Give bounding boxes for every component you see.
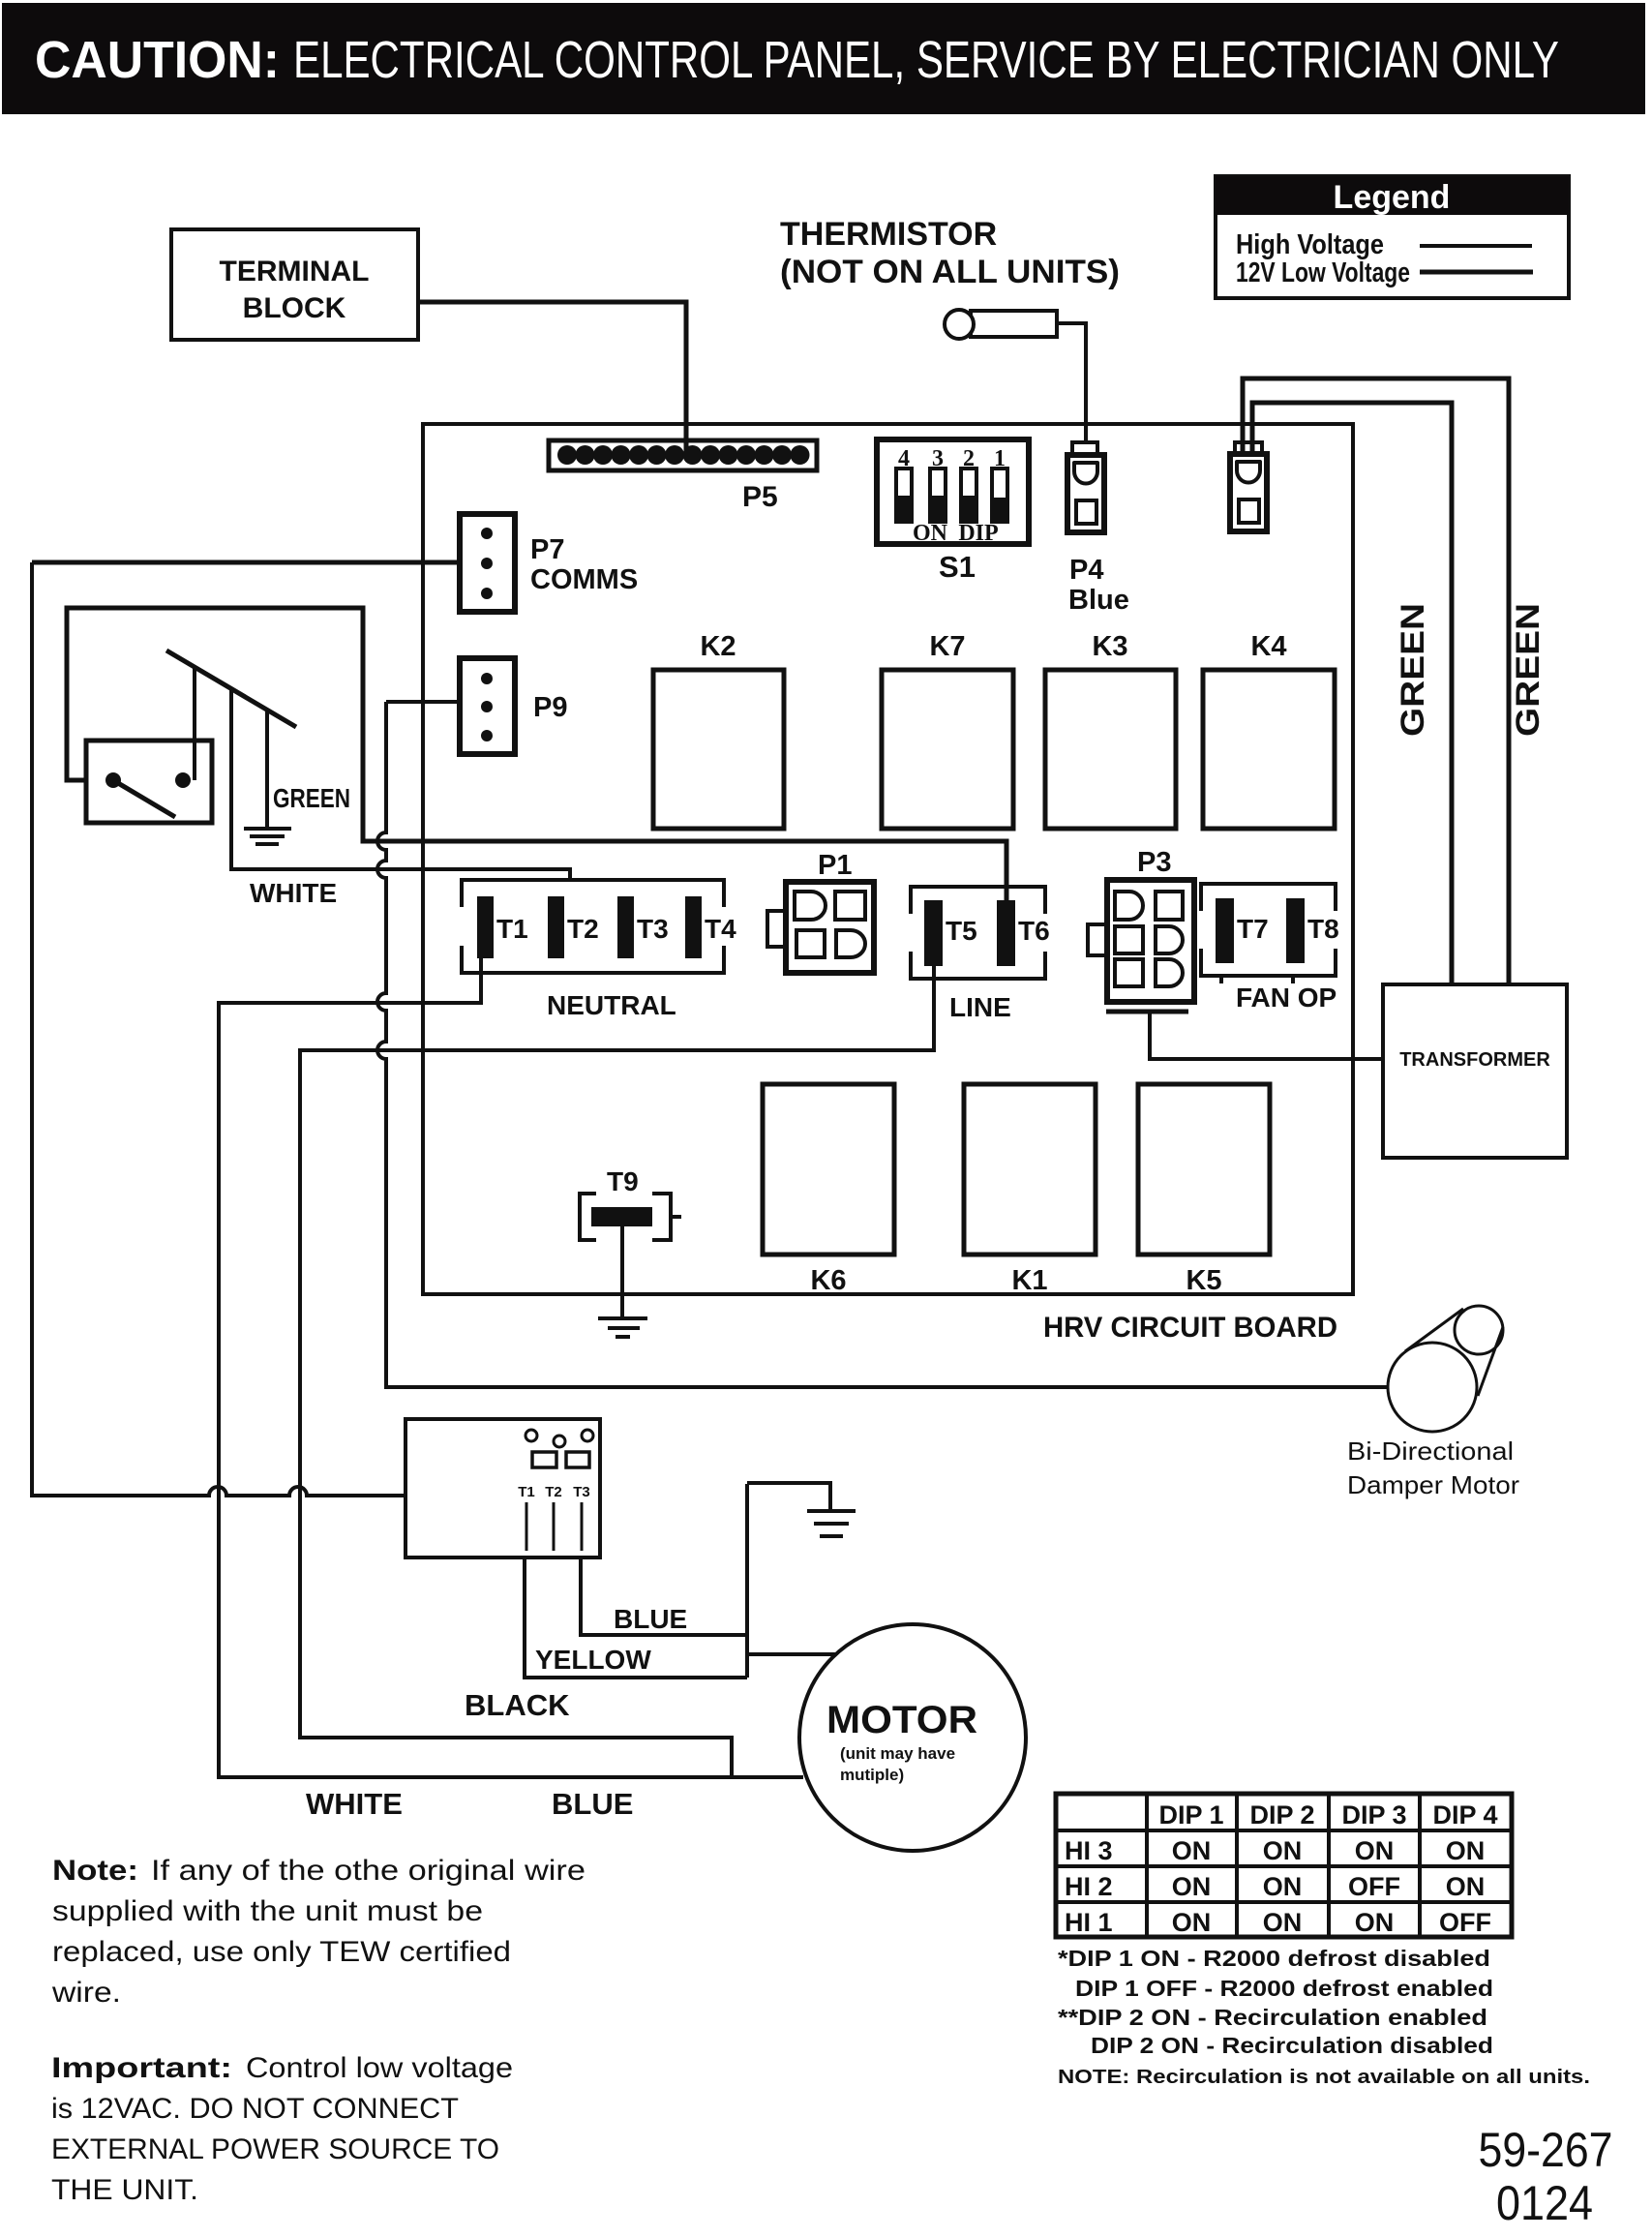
svg-text:T8: T8 (1307, 914, 1339, 944)
svg-text:ON: ON (1355, 1908, 1395, 1937)
svg-text:K4: K4 (1250, 631, 1286, 662)
svg-text:GREEN: GREEN (1395, 603, 1431, 737)
svg-text:Important:Control low voltage: Important:Control low voltage (51, 2052, 513, 2084)
svg-text:DIP: DIP (958, 521, 998, 546)
svg-text:Note:If any of the othe origin: Note:If any of the othe original wire (52, 1855, 586, 1887)
svg-text:K7: K7 (929, 631, 965, 662)
svg-text:P5: P5 (742, 481, 778, 513)
svg-text:DIP 1: DIP 1 (1158, 1800, 1223, 1830)
svg-text:ON: ON (1263, 1872, 1303, 1901)
svg-text:T1: T1 (496, 914, 528, 944)
svg-text:(NOT ON ALL UNITS): (NOT ON ALL UNITS) (780, 254, 1120, 290)
svg-text:T4: T4 (705, 914, 736, 944)
svg-text:ON: ON (1446, 1836, 1486, 1865)
svg-text:supplied with the unit must be: supplied with the unit must be (52, 1895, 483, 1927)
svg-text:(unit may have: (unit may have (840, 1744, 955, 1763)
svg-text:BLUE: BLUE (614, 1604, 687, 1634)
svg-text:**DIP 2 ON - Recirculation ena: **DIP 2 ON - Recirculation enabled (1058, 2005, 1487, 2030)
svg-text:*DIP 1 ON - R2000 defrost disa: *DIP 1 ON - R2000 defrost disabled (1058, 1946, 1490, 1971)
svg-text:NEUTRAL: NEUTRAL (547, 990, 676, 1020)
svg-text:K6: K6 (810, 1265, 846, 1296)
svg-text:wire.: wire. (51, 1977, 121, 2009)
svg-text:T6: T6 (1018, 916, 1050, 946)
svg-text:T3: T3 (573, 1484, 590, 1500)
svg-text:P1: P1 (818, 850, 852, 881)
svg-text:TERMINAL: TERMINAL (220, 256, 370, 287)
svg-text:GREEN: GREEN (1510, 603, 1547, 737)
svg-text:THERMISTOR: THERMISTOR (780, 216, 997, 253)
svg-text:DIP 1 OFF - R2000 defrost enab: DIP 1 OFF - R2000 defrost enabled (1075, 1976, 1493, 2001)
svg-text:DIP 3: DIP 3 (1341, 1800, 1406, 1830)
svg-text:OFF: OFF (1348, 1872, 1400, 1901)
svg-text:ON: ON (1172, 1872, 1212, 1901)
svg-text:59-267: 59-267 (1479, 2123, 1613, 2177)
svg-text:replaced, use only TEW certifi: replaced, use only TEW certified (52, 1936, 511, 1968)
svg-text:T7: T7 (1237, 914, 1269, 944)
svg-text:HI 3: HI 3 (1065, 1836, 1113, 1865)
svg-text:K5: K5 (1186, 1265, 1221, 1296)
svg-text:HRV CIRCUIT BOARD: HRV CIRCUIT BOARD (1043, 1312, 1337, 1344)
svg-text:THE UNIT.: THE UNIT. (51, 2174, 198, 2206)
svg-text:DIP 2: DIP 2 (1249, 1800, 1314, 1830)
svg-text:ON: ON (1355, 1836, 1395, 1865)
svg-text:High Voltage: High Voltage (1236, 229, 1384, 260)
svg-text:T1: T1 (518, 1484, 535, 1500)
svg-text:YELLOW: YELLOW (535, 1645, 651, 1675)
svg-text:P9: P9 (533, 692, 567, 723)
svg-text:Damper Motor: Damper Motor (1347, 1470, 1519, 1499)
svg-text:LINE: LINE (949, 992, 1011, 1022)
svg-text:COMMS: COMMS (530, 564, 638, 595)
svg-text:T9: T9 (607, 1166, 639, 1196)
svg-text:BLUE: BLUE (552, 1787, 633, 1821)
svg-text:ON: ON (1263, 1836, 1303, 1865)
svg-text:Bi-Directional: Bi-Directional (1347, 1437, 1514, 1466)
svg-text:K3: K3 (1092, 631, 1127, 662)
svg-text:MOTOR: MOTOR (826, 1699, 977, 1741)
svg-text:FAN OP: FAN OP (1236, 983, 1337, 1013)
svg-text:CAUTION:ELECTRICAL CONTROL PAN: CAUTION:ELECTRICAL CONTROL PANEL, SERVIC… (35, 31, 1559, 89)
svg-text:BLOCK: BLOCK (243, 292, 346, 324)
svg-text:Legend: Legend (1334, 179, 1451, 216)
svg-text:WHITE: WHITE (250, 878, 337, 908)
svg-text:TRANSFORMER: TRANSFORMER (1399, 1049, 1550, 1071)
svg-text:DIP 4: DIP 4 (1432, 1800, 1497, 1830)
svg-text:ON: ON (1172, 1908, 1212, 1937)
svg-text:P4: P4 (1069, 555, 1103, 586)
svg-text:0124: 0124 (1496, 2176, 1593, 2230)
svg-text:mutiple): mutiple) (840, 1766, 904, 1784)
svg-text:Blue: Blue (1068, 585, 1129, 616)
svg-text:ON: ON (1172, 1836, 1212, 1865)
svg-text:HI 2: HI 2 (1065, 1872, 1113, 1901)
svg-text:S1: S1 (939, 550, 976, 584)
svg-text:T5: T5 (946, 916, 977, 946)
svg-text:NOTE: Recirculation is not ava: NOTE: Recirculation is not available on … (1058, 2067, 1590, 2088)
svg-text:T3: T3 (637, 914, 669, 944)
svg-text:is 12VAC. DO NOT CONNECT: is 12VAC. DO NOT CONNECT (51, 2093, 459, 2125)
svg-text:BLACK: BLACK (465, 1688, 570, 1722)
svg-text:K1: K1 (1011, 1265, 1047, 1296)
svg-text:T2: T2 (567, 914, 599, 944)
svg-text:GREEN: GREEN (273, 783, 350, 813)
svg-text:ON: ON (1446, 1872, 1486, 1901)
svg-text:WHITE: WHITE (306, 1787, 403, 1821)
svg-text:P3: P3 (1137, 847, 1171, 878)
svg-text:OFF: OFF (1439, 1908, 1491, 1937)
svg-text:T2: T2 (545, 1484, 562, 1500)
svg-text:HI 1: HI 1 (1065, 1908, 1113, 1937)
svg-text:K2: K2 (700, 631, 736, 662)
svg-text:ON: ON (913, 521, 948, 546)
svg-text:EXTERNAL POWER SOURCE TO: EXTERNAL POWER SOURCE TO (51, 2133, 499, 2165)
svg-text:DIP 2 ON - Recirculation disab: DIP 2 ON - Recirculation disabled (1091, 2033, 1493, 2058)
svg-text:12V Low Voltage: 12V Low Voltage (1236, 257, 1410, 288)
svg-text:P7: P7 (530, 534, 564, 565)
svg-text:ON: ON (1263, 1908, 1303, 1937)
